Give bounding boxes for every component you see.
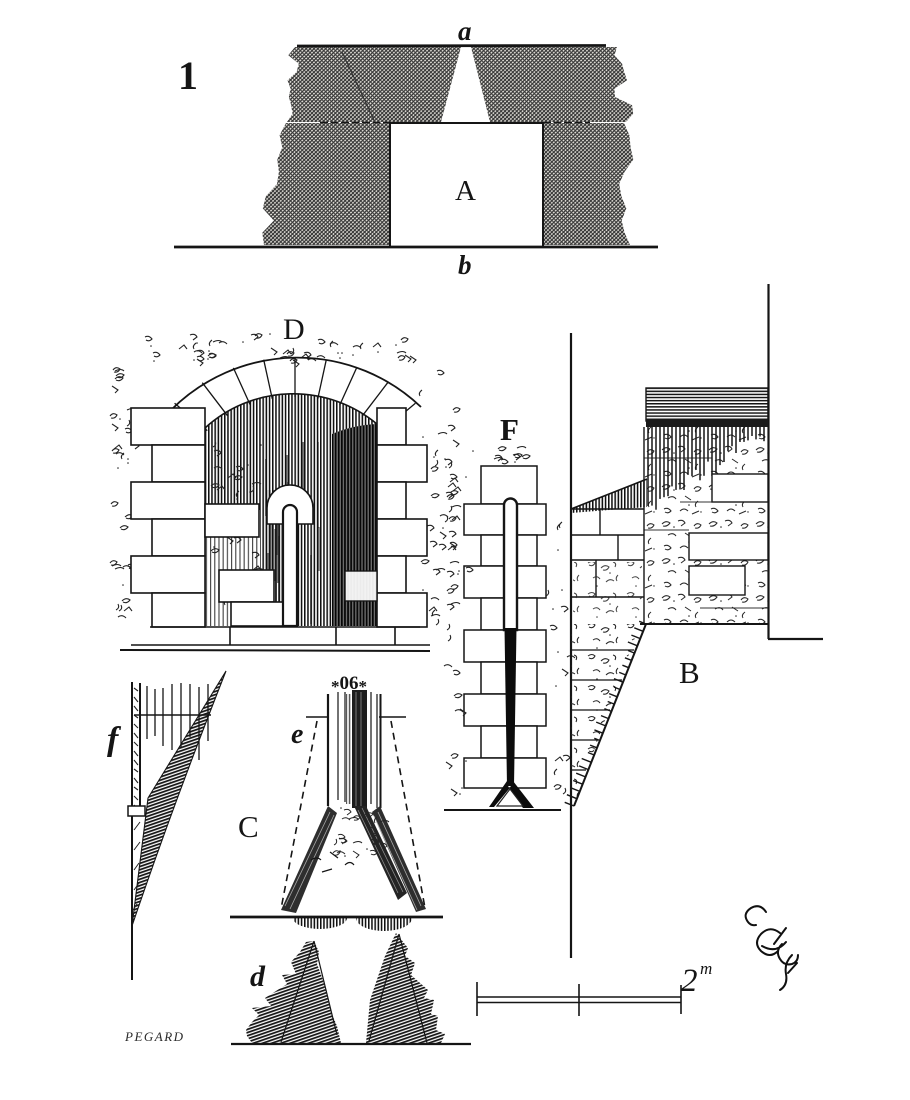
- svg-text:C: C: [238, 809, 259, 844]
- svg-text:a: a: [458, 16, 472, 46]
- svg-text:A: A: [455, 175, 476, 207]
- svg-text:F: F: [500, 412, 519, 447]
- svg-text:b: b: [458, 250, 472, 280]
- svg-text:1: 1: [178, 53, 198, 98]
- svg-text:e: e: [291, 719, 303, 750]
- svg-text:*06*: *06*: [331, 673, 367, 696]
- svg-text:PEGARD: PEGARD: [124, 1029, 185, 1044]
- svg-text:d: d: [250, 960, 266, 993]
- svg-text:2: 2: [681, 963, 698, 999]
- svg-text:m: m: [700, 959, 712, 978]
- svg-text:D: D: [283, 313, 305, 346]
- svg-text:f: f: [107, 721, 122, 758]
- svg-text:B: B: [679, 655, 700, 690]
